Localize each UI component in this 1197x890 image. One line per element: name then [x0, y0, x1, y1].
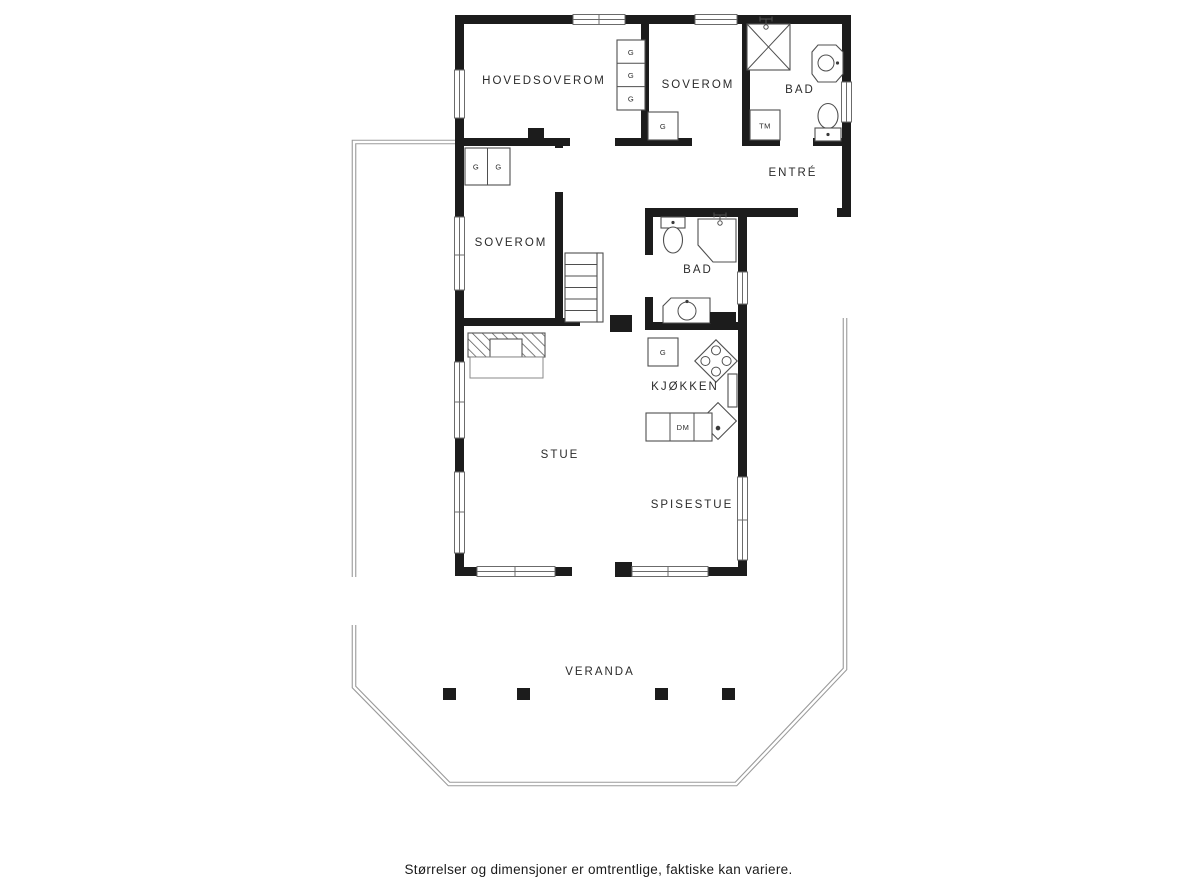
- window-marker: [455, 362, 465, 438]
- veranda-post: [517, 688, 530, 700]
- wardrobe-label: G: [495, 163, 501, 172]
- disclaimer-caption: Størrelser og dimensjoner er omtrentlige…: [0, 862, 1197, 877]
- windows: [455, 15, 852, 577]
- window-marker: [695, 15, 737, 25]
- dishwasher: DM: [646, 413, 712, 441]
- stairs: [565, 253, 603, 322]
- shower-icon: [747, 17, 790, 71]
- window-marker: [455, 217, 465, 290]
- corner-shower-icon: [698, 213, 736, 263]
- wardrobe-label: G: [628, 95, 634, 104]
- window-marker: [842, 82, 852, 122]
- wardrobe-label: G: [473, 163, 479, 172]
- window-marker: [573, 15, 625, 25]
- room-label-veranda: VERANDA: [565, 666, 635, 678]
- fireplace: [468, 333, 545, 378]
- toilet-icon: [661, 217, 685, 253]
- washing-machine-label: TM: [759, 122, 771, 131]
- wardrobe-label: G: [660, 122, 666, 131]
- floor-plan-svg: G G G G G G: [0, 0, 1197, 890]
- kitchen-counter: [728, 374, 737, 407]
- floor-plan-page: G G G G G G: [0, 0, 1197, 890]
- wardrobe-column: G G G: [617, 40, 645, 110]
- room-label-kjokken: KJØKKEN: [651, 381, 719, 393]
- wardrobe-double: G G: [465, 148, 510, 185]
- veranda-posts: [443, 688, 735, 700]
- window-marker: [738, 272, 748, 304]
- window-marker: [455, 70, 465, 118]
- kitchen-cabinet: G: [648, 338, 678, 366]
- window-marker: [477, 567, 555, 577]
- room-label-hovedsoverom: HOVEDSOVEROM: [482, 75, 606, 87]
- wardrobe-label: G: [628, 71, 634, 80]
- room-label-bad-mid: BAD: [683, 264, 713, 276]
- wardrobe-label: G: [660, 348, 666, 357]
- washing-machine: TM: [750, 110, 780, 140]
- room-label-stue: STUE: [541, 449, 580, 461]
- room-label-soverom-mid: SOVEROM: [475, 237, 548, 249]
- walls: [455, 15, 851, 577]
- sink-icon: [663, 298, 736, 323]
- window-marker: [455, 472, 465, 553]
- dishwasher-label: DM: [677, 423, 690, 432]
- veranda-railing: [354, 142, 845, 784]
- bathroom-top-fixtures: TM: [747, 17, 843, 142]
- window-marker: [738, 477, 748, 560]
- room-label-soverom-top: SOVEROM: [662, 79, 735, 91]
- room-label-entre: ENTRÉ: [769, 166, 818, 179]
- window-marker: [632, 567, 708, 577]
- sink-icon: [812, 45, 843, 82]
- veranda-post: [655, 688, 668, 700]
- room-label-spisestue: SPISESTUE: [651, 499, 734, 511]
- wardrobe-label: G: [628, 48, 634, 57]
- veranda-post: [443, 688, 456, 700]
- room-label-bad-top: BAD: [785, 84, 815, 96]
- veranda-post: [722, 688, 735, 700]
- wardrobe-single: G: [648, 112, 678, 140]
- toilet-icon: [815, 104, 841, 142]
